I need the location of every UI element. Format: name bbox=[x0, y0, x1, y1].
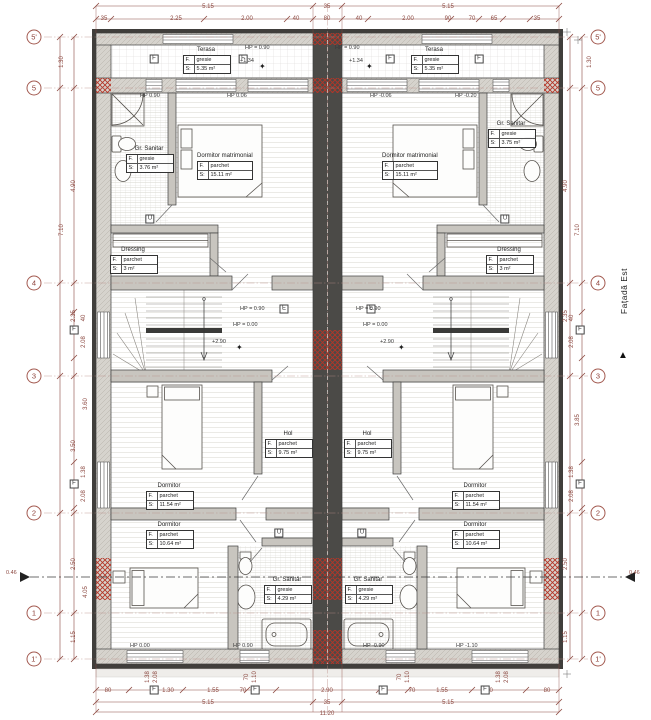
room-finish-value: 5.35 m² bbox=[423, 65, 458, 73]
grid-bubble: 4 bbox=[591, 276, 606, 291]
room-name: Dormitor bbox=[452, 483, 498, 490]
room-finish-value: gresie bbox=[423, 56, 458, 65]
room-finish-key: F. bbox=[127, 155, 138, 164]
dim-label: 2.50 bbox=[71, 558, 77, 570]
dim-label: 4.05 bbox=[83, 586, 89, 598]
room-finish-value: 3.76 m² bbox=[138, 164, 173, 172]
door-tag: U bbox=[274, 529, 283, 538]
room-finish-value: 9.75 m² bbox=[356, 449, 391, 457]
room-name: Gr. Sanitar bbox=[126, 146, 172, 153]
room-name: Terasa bbox=[411, 47, 457, 54]
room-name: Gr. Sanitar bbox=[488, 121, 534, 128]
dim-label: 3.50 bbox=[71, 440, 77, 452]
room-finish-value: parchet bbox=[158, 492, 193, 501]
dim-label: 1.38 bbox=[496, 671, 502, 683]
window-tag: F bbox=[576, 326, 585, 335]
room-finish-key: S: bbox=[266, 449, 277, 457]
room-finish-value: 15.11 m² bbox=[394, 171, 437, 179]
room-label-dormitor-matrimonial-right: Dormitor matrimonialF.parchetS:15.11 m² bbox=[382, 153, 436, 180]
dim-label: 5.15 bbox=[202, 700, 214, 706]
section-marker-right: 0.46 bbox=[629, 570, 640, 576]
grid-bubble: 1 bbox=[591, 606, 606, 621]
grid-bubble: 5' bbox=[591, 30, 606, 45]
room-finish-key: S: bbox=[346, 595, 357, 603]
room-finish-value: 11.54 m² bbox=[464, 501, 499, 509]
dim-label: 1.38 bbox=[569, 466, 575, 478]
dim-label: 80 bbox=[105, 688, 112, 694]
level-bottom-right: HP -1.10 bbox=[456, 643, 478, 649]
room-label-dormitor-bottom-right: DormitorF.parchetS:10.64 m² bbox=[452, 522, 498, 549]
room-finish-key: S: bbox=[265, 595, 276, 603]
level-plus-terasa-right: +1.34 bbox=[349, 58, 363, 64]
room-finish-box: F.gresieS:5.35 m² bbox=[183, 55, 231, 74]
grid-bubble: 3 bbox=[27, 369, 42, 384]
room-finish-box: F.parchetS:10.64 m² bbox=[146, 530, 194, 549]
window-tag: F bbox=[251, 686, 260, 695]
room-finish-box: F.gresieS:5.35 m² bbox=[411, 55, 459, 74]
room-finish-value: gresie bbox=[276, 586, 311, 595]
dim-label: 80 bbox=[324, 16, 331, 22]
dim-label: 2.08 bbox=[569, 336, 575, 348]
room-finish-key: F. bbox=[147, 531, 158, 540]
room-finish-key: S: bbox=[487, 265, 498, 273]
e-tag: E bbox=[279, 305, 288, 314]
room-finish-key: F. bbox=[412, 56, 423, 65]
dim-label: 7.10 bbox=[59, 224, 65, 236]
dim-label: 4.90 bbox=[71, 180, 77, 192]
room-finish-value: 4.29 m² bbox=[357, 595, 392, 603]
room-finish-key: F. bbox=[265, 586, 276, 595]
room-finish-value: 10.64 m² bbox=[464, 540, 499, 548]
room-finish-box: F.gresieS:4.29 m² bbox=[264, 585, 312, 604]
room-name: Hol bbox=[344, 431, 390, 438]
dim-label: 1.38 bbox=[81, 466, 87, 478]
room-label-hol-left: HolF.parchetS:9.75 m² bbox=[265, 431, 311, 458]
room-label-gr-sanitar-bottom-right: Gr. SanitarF.gresieS:4.29 m² bbox=[345, 577, 391, 604]
grid-bubble: 5' bbox=[27, 30, 42, 45]
level-plus-terasa-left: +1.34 bbox=[240, 58, 254, 64]
room-label-gr-sanitar-top-right: Gr. SanitarF.gresieS:3.75 m² bbox=[488, 121, 534, 148]
room-finish-key: S: bbox=[489, 139, 500, 147]
grid-bubble: 1' bbox=[591, 652, 606, 667]
dim-label: 70 bbox=[469, 16, 476, 22]
dim-label: 2.08 bbox=[153, 671, 159, 683]
room-finish-value: parchet bbox=[158, 531, 193, 540]
dim-label: 7.10 bbox=[575, 224, 581, 236]
dim-label: 2.00 bbox=[241, 16, 253, 22]
dim-label: 70 bbox=[240, 688, 247, 694]
room-finish-key: S: bbox=[412, 65, 423, 73]
level-dorm-right: HP -0.06 bbox=[370, 93, 392, 99]
door-tag: U bbox=[500, 215, 509, 224]
dim-label: 2.08 bbox=[81, 336, 87, 348]
window-tag: F bbox=[379, 686, 388, 695]
room-finish-key: S: bbox=[127, 164, 138, 172]
window-tag: F bbox=[150, 55, 159, 64]
dim-label: 2.25 bbox=[170, 16, 182, 22]
room-name: Gr. Sanitar bbox=[345, 577, 391, 584]
dim-label: 2.08 bbox=[504, 671, 510, 683]
room-finish-value: 10.64 m² bbox=[158, 540, 193, 548]
door-tag: U bbox=[357, 529, 366, 538]
room-finish-value: 9.75 m² bbox=[277, 449, 312, 457]
room-name: Dormitor matrimonial bbox=[382, 153, 436, 160]
dim-label: 3.85 bbox=[575, 414, 581, 426]
door-tag: U bbox=[145, 215, 154, 224]
grid-bubble: 1 bbox=[27, 606, 42, 621]
room-finish-key: F. bbox=[453, 492, 464, 501]
room-finish-value: parchet bbox=[394, 162, 437, 171]
dim-label: 1.10 bbox=[405, 671, 411, 683]
room-finish-box: F.parchetS:3 m² bbox=[486, 255, 534, 274]
dim-label: 65 bbox=[491, 16, 498, 22]
level-dorm-left: HP 0.06 bbox=[227, 93, 247, 99]
grid-bubble: 4 bbox=[27, 276, 42, 291]
dim-label: 2.08 bbox=[569, 490, 575, 502]
room-finish-key: S: bbox=[383, 171, 394, 179]
room-finish-box: F.gresieS:3.75 m² bbox=[488, 129, 536, 148]
grid-bubble: 2 bbox=[591, 506, 606, 521]
room-name: Terasa bbox=[183, 47, 229, 54]
dim-label: 80 bbox=[544, 688, 551, 694]
grid-bubble: 2 bbox=[27, 506, 42, 521]
room-finish-key: F. bbox=[453, 531, 464, 540]
room-name: Dressing bbox=[110, 247, 156, 254]
dim-label: 35 bbox=[324, 700, 331, 706]
room-name: Dormitor bbox=[146, 522, 192, 529]
room-finish-value: gresie bbox=[138, 155, 173, 164]
dim-label: 5.15 bbox=[442, 700, 454, 706]
level-star-icon: ✦ bbox=[398, 344, 405, 352]
dim-label: 11.20 bbox=[320, 711, 335, 717]
dim-label: 1.10 bbox=[252, 671, 258, 683]
dim-label: 1.38 bbox=[145, 671, 151, 683]
room-finish-box: F.gresieS:4.29 m² bbox=[345, 585, 393, 604]
room-label-dormitor-matrimonial-left: Dormitor matrimonialF.parchetS:15.11 m² bbox=[197, 153, 251, 180]
room-name: Dormitor matrimonial bbox=[197, 153, 251, 160]
room-finish-value: gresie bbox=[357, 586, 392, 595]
section-marker-left: 0.46 bbox=[6, 570, 17, 576]
room-label-gr-sanitar-bottom-left: Gr. SanitarF.gresieS:4.29 m² bbox=[264, 577, 310, 604]
dim-label: 1.55 bbox=[207, 688, 219, 694]
room-finish-value: parchet bbox=[356, 440, 391, 449]
dim-label: 5.15 bbox=[442, 4, 454, 10]
level-stair-right-down: HP = 0.00 bbox=[363, 322, 388, 328]
window-tag: F bbox=[386, 55, 395, 64]
room-label-dormitor-mid-right: DormitorF.parchetS:11.54 m² bbox=[452, 483, 498, 510]
room-finish-value: 3.75 m² bbox=[500, 139, 535, 147]
dim-label: 5.15 bbox=[202, 4, 214, 10]
room-finish-key: F. bbox=[383, 162, 394, 171]
room-finish-value: parchet bbox=[464, 492, 499, 501]
room-finish-key: S: bbox=[198, 171, 209, 179]
dim-label: 2.50 bbox=[563, 558, 569, 570]
room-finish-key: S: bbox=[345, 449, 356, 457]
room-finish-box: F.gresieS:3.76 m² bbox=[126, 154, 174, 173]
window-tag: F bbox=[70, 480, 79, 489]
room-finish-value: 3 m² bbox=[122, 265, 157, 273]
room-finish-key: F. bbox=[487, 256, 498, 265]
room-finish-value: 11.54 m² bbox=[158, 501, 193, 509]
room-finish-value: parchet bbox=[464, 531, 499, 540]
room-finish-key: F. bbox=[198, 162, 209, 171]
grid-bubble: 3 bbox=[591, 369, 606, 384]
dim-label: 90 bbox=[445, 16, 452, 22]
room-finish-key: F. bbox=[266, 440, 277, 449]
dim-label: 1.15 bbox=[71, 631, 77, 643]
room-finish-box: F.parchetS:11.54 m² bbox=[146, 491, 194, 510]
level-gs-top-right: HP -0.20 bbox=[455, 93, 477, 99]
facade-arrow-icon: ▲ bbox=[618, 350, 628, 361]
room-finish-key: S: bbox=[453, 501, 464, 509]
room-finish-key: F. bbox=[147, 492, 158, 501]
room-finish-box: F.parchetS:9.75 m² bbox=[344, 439, 392, 458]
room-finish-box: F.parchetS:15.11 m² bbox=[382, 161, 438, 180]
room-finish-key: F. bbox=[184, 56, 195, 65]
level-gs-top-left: HP 0.90 bbox=[140, 93, 160, 99]
level-bottom-center-right: HP -0.90 bbox=[363, 643, 385, 649]
room-finish-value: parchet bbox=[122, 256, 157, 265]
dim-label: 1.30 bbox=[162, 688, 174, 694]
room-name: Dormitor bbox=[452, 522, 498, 529]
room-finish-value: gresie bbox=[500, 130, 535, 139]
room-name: Gr. Sanitar bbox=[264, 577, 310, 584]
room-name: Dressing bbox=[486, 247, 532, 254]
dim-label: 40 bbox=[569, 315, 575, 322]
room-label-dormitor-mid-left: DormitorF.parchetS:11.54 m² bbox=[146, 483, 192, 510]
level-terasa-right: HP = 0.90 bbox=[335, 45, 360, 51]
dim-label: 70 bbox=[409, 688, 416, 694]
room-finish-box: F.parchetS:9.75 m² bbox=[265, 439, 313, 458]
level-plus-stair-right: +2.90 bbox=[380, 339, 394, 345]
room-finish-value: parchet bbox=[209, 162, 252, 171]
dim-label: 70 bbox=[397, 674, 403, 681]
room-finish-value: gresie bbox=[195, 56, 230, 65]
room-finish-key: S: bbox=[147, 540, 158, 548]
room-name: Dormitor bbox=[146, 483, 192, 490]
floor-plan-drawing bbox=[0, 0, 651, 720]
room-finish-key: F. bbox=[346, 586, 357, 595]
window-tag: F bbox=[70, 326, 79, 335]
grid-bubble: 5 bbox=[27, 81, 42, 96]
dim-label: 3.60 bbox=[83, 398, 89, 410]
dim-label: 2.35 bbox=[71, 310, 77, 322]
survey-crosses bbox=[563, 28, 582, 678]
level-stair-left-down: HP = 0.00 bbox=[233, 322, 258, 328]
dim-label: 35 bbox=[324, 4, 331, 10]
facade-east-label: Fațadă Est bbox=[619, 236, 629, 346]
level-star-icon: ✦ bbox=[366, 63, 373, 71]
room-finish-key: F. bbox=[345, 440, 356, 449]
window-tag: F bbox=[475, 55, 484, 64]
floor-plan-page: 5.15355.15 352.252.004080402.0090706535 … bbox=[0, 0, 651, 720]
dim-label: 1.55 bbox=[436, 688, 448, 694]
dim-label: 1.30 bbox=[587, 56, 593, 68]
dim-label: 1.15 bbox=[563, 631, 569, 643]
room-label-gr-sanitar-top-left: Gr. SanitarF.gresieS:3.76 m² bbox=[126, 146, 172, 173]
room-name: Hol bbox=[265, 431, 311, 438]
dim-label: 40 bbox=[356, 16, 363, 22]
window-tag: F bbox=[481, 686, 490, 695]
room-label-hol-right: HolF.parchetS:9.75 m² bbox=[344, 431, 390, 458]
dim-label: 70 bbox=[244, 674, 250, 681]
room-finish-key: S: bbox=[147, 501, 158, 509]
room-finish-box: F.parchetS:11.54 m² bbox=[452, 491, 500, 510]
room-finish-key: F. bbox=[111, 256, 122, 265]
dim-label: 40 bbox=[81, 315, 87, 322]
room-finish-value: 3 m² bbox=[498, 265, 533, 273]
room-finish-key: S: bbox=[111, 265, 122, 273]
room-finish-value: 15.11 m² bbox=[209, 171, 252, 179]
room-label-dressing-right: DressingF.parchetS:3 m² bbox=[486, 247, 532, 274]
room-label-terasa-right: TerasaF.gresieS:5.35 m² bbox=[411, 47, 457, 74]
room-finish-value: parchet bbox=[498, 256, 533, 265]
level-stair-right-up: HP = 0.90 bbox=[356, 306, 381, 312]
room-finish-box: F.parchetS:3 m² bbox=[110, 255, 158, 274]
level-plus-stair-left: +2.90 bbox=[212, 339, 226, 345]
room-finish-key: F. bbox=[489, 130, 500, 139]
level-stair-left-up: HP = 0.90 bbox=[240, 306, 265, 312]
window-tag: F bbox=[150, 686, 159, 695]
dim-label: 35 bbox=[101, 16, 108, 22]
level-bottom-left: HP 0.00 bbox=[130, 643, 150, 649]
room-finish-value: 4.29 m² bbox=[276, 595, 311, 603]
room-finish-box: F.parchetS:15.11 m² bbox=[197, 161, 253, 180]
level-bottom-center-left: HP 0.90 bbox=[233, 643, 253, 649]
room-finish-key: S: bbox=[184, 65, 195, 73]
window-tag: F bbox=[576, 480, 585, 489]
room-label-terasa-left: TerasaF.gresieS:5.35 m² bbox=[183, 47, 229, 74]
room-label-dressing-left: DressingF.parchetS:3 m² bbox=[110, 247, 156, 274]
room-finish-value: 5.35 m² bbox=[195, 65, 230, 73]
dim-label: 2.00 bbox=[402, 16, 414, 22]
dim-label: 2.90 bbox=[321, 688, 333, 694]
grid-bubble: 5 bbox=[591, 81, 606, 96]
dim-label: 2.08 bbox=[81, 490, 87, 502]
room-finish-box: F.parchetS:10.64 m² bbox=[452, 530, 500, 549]
room-finish-value: parchet bbox=[277, 440, 312, 449]
level-star-icon: ✦ bbox=[236, 344, 243, 352]
dim-label: 4.90 bbox=[563, 180, 569, 192]
dim-label: 1.30 bbox=[59, 56, 65, 68]
grid-bubble: 1' bbox=[27, 652, 42, 667]
dim-label: 35 bbox=[534, 16, 541, 22]
room-finish-key: S: bbox=[453, 540, 464, 548]
dim-label: 40 bbox=[293, 16, 300, 22]
room-label-dormitor-bottom-left: DormitorF.parchetS:10.64 m² bbox=[146, 522, 192, 549]
level-star-icon: ✦ bbox=[259, 63, 266, 71]
level-terasa-left: HP = 0.90 bbox=[245, 45, 270, 51]
